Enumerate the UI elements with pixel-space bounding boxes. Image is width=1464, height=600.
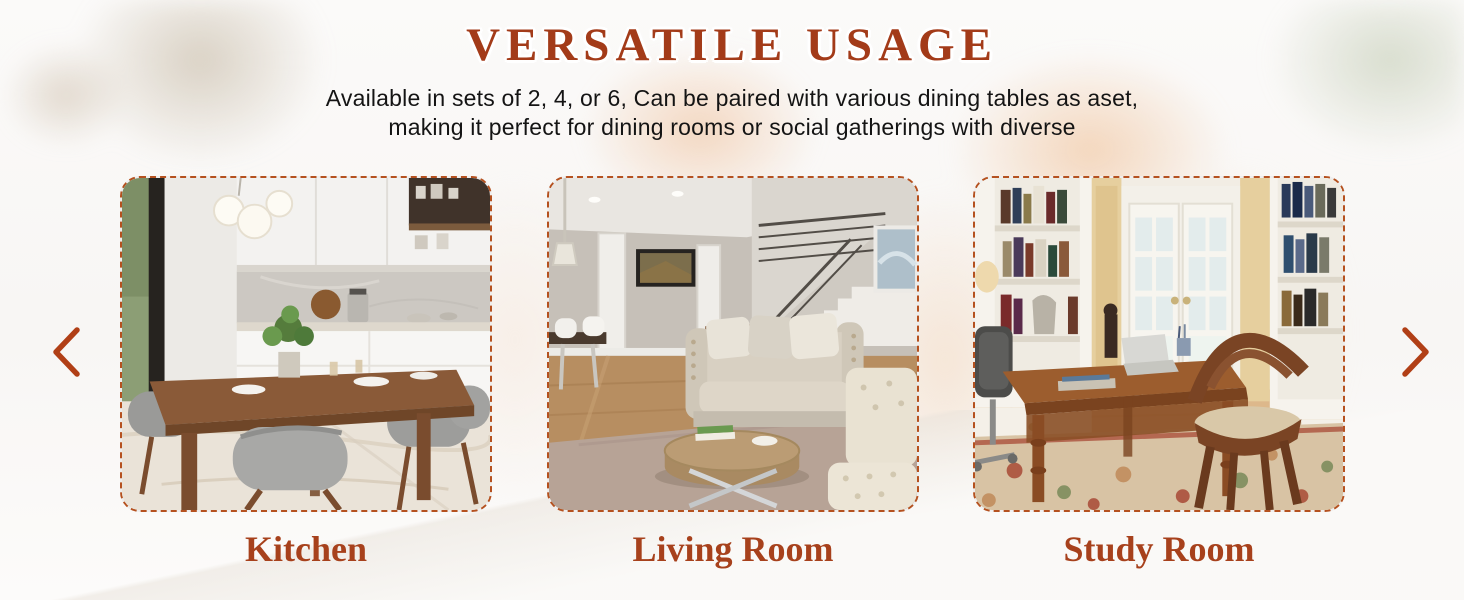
caption-study-room: Study Room bbox=[973, 528, 1345, 570]
subtitle-line-1: Available in sets of 2, 4, or 6, Can be … bbox=[0, 84, 1464, 113]
caption-living-room: Living Room bbox=[547, 528, 919, 570]
carousel-next-button[interactable] bbox=[1388, 322, 1444, 382]
living-room-photo bbox=[549, 178, 917, 510]
carousel-slide-living-room[interactable] bbox=[547, 176, 919, 512]
carousel-prev-button[interactable] bbox=[38, 322, 94, 382]
carousel-slide-kitchen[interactable] bbox=[120, 176, 492, 512]
kitchen-photo bbox=[122, 178, 490, 510]
study-room-photo bbox=[975, 178, 1343, 510]
section-title: VERSATILE USAGE bbox=[0, 18, 1464, 72]
carousel-slide-study-room[interactable] bbox=[973, 176, 1345, 512]
chevron-left-icon bbox=[49, 325, 83, 379]
versatile-usage-section: VERSATILE USAGE Available in sets of 2, … bbox=[0, 0, 1464, 600]
chevron-right-icon bbox=[1399, 325, 1433, 379]
caption-kitchen: Kitchen bbox=[120, 528, 492, 570]
section-subtitle: Available in sets of 2, 4, or 6, Can be … bbox=[0, 84, 1464, 142]
subtitle-line-2: making it perfect for dining rooms or so… bbox=[0, 113, 1464, 142]
